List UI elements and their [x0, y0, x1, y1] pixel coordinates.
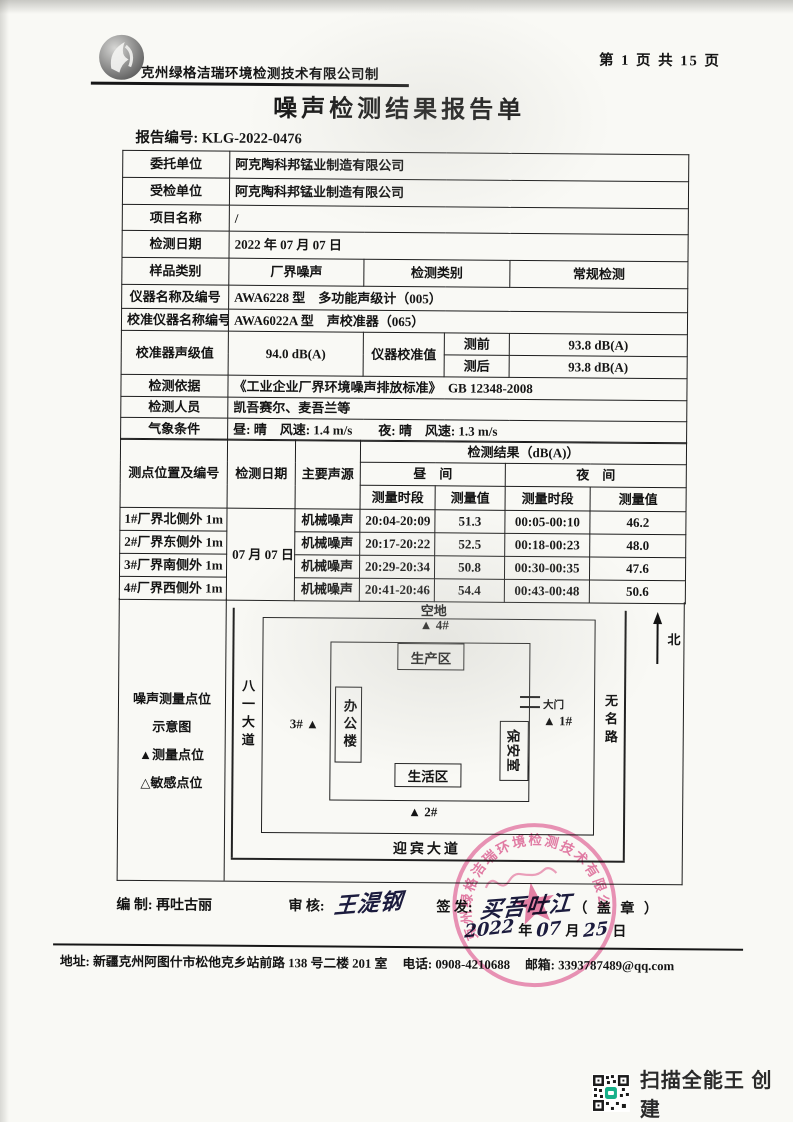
- measure-date: 07 月 07 日: [226, 508, 295, 601]
- review-signature: 王湜钢: [333, 883, 405, 921]
- pre-test-label: 测前: [444, 333, 509, 356]
- col-date-header: 检测日期: [227, 439, 296, 509]
- legend-measure-point: ▲测量点位: [139, 743, 204, 763]
- point-4: 4#厂界西侧外 1m: [119, 576, 226, 600]
- source-3: 机械噪声: [294, 555, 359, 579]
- basis-label: 检测依据: [121, 374, 228, 397]
- point-3: 3#厂界南侧外 1m: [119, 553, 226, 577]
- source-2: 机械噪声: [295, 532, 360, 556]
- inspected-value: 阿克陶科邦锰业制造有限公司: [229, 178, 688, 209]
- guard-room-box: 保安室: [499, 721, 528, 781]
- client-value: 阿克陶科邦锰业制造有限公司: [230, 151, 689, 182]
- instrument-cal-label: 仪器校准值: [363, 332, 444, 377]
- north-arrow-icon: [650, 612, 664, 669]
- results-table: 测点位置及编号 检测日期 主要声源 检测结果（dB(A)） 昼 间 夜 间 测量…: [119, 438, 687, 604]
- table-row: 测点位置及编号 检测日期 主要声源 检测结果（dB(A)）: [120, 438, 686, 464]
- date-value: 2022 年 07 月 07 日: [229, 231, 688, 262]
- point-4-marker: ▲ 4#: [420, 617, 449, 633]
- stamp-uyghur-script: [484, 867, 557, 889]
- project-label: 项目名称: [122, 204, 229, 231]
- night-value-1: 46.2: [590, 511, 686, 535]
- diagram-legend: 噪声测量点位 示意图 ▲测量点位 △敏感点位: [118, 598, 227, 881]
- night-value-3: 47.6: [589, 557, 685, 581]
- sample-value: 厂界噪声: [229, 258, 364, 286]
- day-period-4: 20:41-20:46: [359, 578, 434, 602]
- source-4: 机械噪声: [294, 578, 359, 602]
- maker-company-name: 克州绿格洁瑞环境检测技术有限公司制: [141, 61, 379, 83]
- living-area-box: 生活区: [394, 763, 461, 788]
- day-header: 昼 间: [360, 462, 505, 486]
- company-seal-stamp: 克州绿格洁瑞环境检测技术有限公司: [434, 805, 634, 1005]
- night-period-2: 00:18-00:23: [505, 533, 590, 557]
- office-building-label: 办公楼: [338, 698, 358, 751]
- guard-room-label: 保安室: [504, 729, 524, 773]
- col-source-header: 主要声源: [295, 440, 361, 510]
- instrument-label: 仪器名称及编号: [122, 284, 229, 309]
- source-1: 机械噪声: [295, 509, 360, 533]
- instrument-value: AWA6228 型 多功能声级计（005）: [229, 285, 688, 313]
- footer-address: 地址: 新疆克州阿图什市松他克乡站前路 138 号二楼 201 室: [60, 950, 388, 972]
- weather-label: 气象条件: [121, 417, 228, 440]
- night-header: 夜 间: [505, 463, 686, 487]
- camscanner-watermark: 扫描全能王 创建: [592, 1064, 793, 1122]
- night-period-header: 测量时段: [505, 486, 590, 511]
- day-value-4: 54.4: [434, 579, 504, 603]
- camscanner-label: 扫描全能王 创建: [640, 1064, 793, 1122]
- project-value: /: [229, 205, 688, 235]
- legend-title-1: 噪声测量点位: [133, 687, 211, 707]
- living-area-label: 生活区: [408, 765, 449, 785]
- col-result-header: 检测结果（dB(A)）: [360, 440, 686, 465]
- personnel-label: 检测人员: [121, 396, 228, 418]
- qr-code-icon: [592, 1074, 630, 1112]
- road-left-outer-line: [231, 608, 235, 858]
- prepared-label: 编 制:: [116, 898, 156, 913]
- scan-content: 克州绿格洁瑞环境检测技术有限公司制 第 1 页 共 15 页 噪声检测结果报告单…: [0, 0, 793, 1122]
- road-right-label: 无名路: [601, 694, 620, 748]
- prepared-by: 编 制: 再吐古丽: [116, 894, 212, 915]
- cal-level-label: 校准器声级值: [121, 330, 228, 375]
- client-label: 委托单位: [123, 150, 230, 178]
- production-area-label: 生产区: [411, 647, 452, 667]
- north-label: 北: [667, 629, 680, 648]
- document-title: 噪声检测结果报告单: [3, 86, 793, 127]
- night-value-4: 50.6: [589, 580, 685, 604]
- post-test-value: 93.8 dB(A): [509, 355, 687, 378]
- night-period-3: 00:30-00:35: [504, 556, 589, 580]
- point-1: 1#厂界北侧外 1m: [120, 507, 227, 531]
- stamp-star-icon: [510, 879, 558, 926]
- day-value-2: 52.5: [435, 533, 505, 557]
- gate-label: 大门: [543, 697, 564, 712]
- point-2-marker: ▲ 2#: [408, 804, 437, 820]
- review-label: 审 核:: [288, 895, 324, 915]
- day-value-1: 51.3: [435, 510, 505, 534]
- footer-contact: 地址: 新疆克州阿图什市松他克乡站前路 138 号二楼 201 室 电话: 09…: [60, 950, 750, 974]
- day-period-2: 20:17-20:22: [360, 532, 435, 556]
- report-number-label: 报告编号:: [135, 130, 202, 147]
- night-value-header: 测量值: [590, 487, 686, 512]
- report-number: 报告编号: KLG-2022-0476: [135, 126, 302, 148]
- inspected-label: 受检单位: [122, 177, 229, 205]
- calibrator-label: 校准仪器名称编号: [121, 308, 228, 331]
- scanned-page: 克州绿格洁瑞环境检测技术有限公司制 第 1 页 共 15 页 噪声检测结果报告单…: [0, 0, 793, 1122]
- gate-mark-top: [520, 696, 540, 698]
- point-1-marker: ▲ 1#: [543, 713, 572, 729]
- info-table: 委托单位 阿克陶科邦锰业制造有限公司 受检单位 阿克陶科邦锰业制造有限公司 项目…: [120, 150, 689, 444]
- day-value-3: 50.8: [434, 556, 504, 580]
- legend-sensitive-point: △敏感点位: [140, 771, 202, 790]
- day-period-3: 20:29-20:34: [359, 555, 434, 579]
- road-left-label: 八一大道: [238, 679, 258, 751]
- cal-level-value: 94.0 dB(A): [228, 331, 363, 376]
- report-number-value: KLG-2022-0476: [202, 130, 302, 147]
- road-right-outer-line: [623, 611, 627, 861]
- col-point-header: 测点位置及编号: [120, 438, 228, 508]
- production-area-box: 生产区: [397, 643, 464, 671]
- date-label: 检测日期: [122, 230, 229, 258]
- post-test-label: 测后: [444, 355, 509, 378]
- pre-test-value: 93.8 dB(A): [509, 333, 687, 356]
- prepared-name: 再吐古丽: [156, 898, 212, 913]
- sample-label: 样品类别: [122, 257, 229, 285]
- night-value-2: 48.0: [590, 534, 686, 558]
- point-2: 2#厂界东侧外 1m: [120, 530, 227, 554]
- category-label: 检测类别: [364, 259, 510, 287]
- day-value-header: 测量值: [435, 486, 505, 511]
- table-row: 校准器声级值 94.0 dB(A) 仪器校准值 测前 93.8 dB(A): [121, 330, 687, 356]
- night-period-4: 00:43-00:48: [504, 579, 589, 603]
- legend-title-2: 示意图: [152, 716, 191, 735]
- page-number: 第 1 页 共 15 页: [599, 49, 721, 71]
- day-period-header: 测量时段: [360, 485, 435, 510]
- point-3-marker: 3# ▲: [290, 716, 319, 732]
- gate-mark-bottom: [520, 706, 540, 708]
- company-logo-icon: [97, 33, 146, 82]
- night-period-1: 00:05-00:10: [505, 510, 590, 534]
- day-period-1: 20:04-20:09: [360, 509, 435, 533]
- category-value: 常规检测: [510, 260, 688, 288]
- office-building-box: 办公楼: [335, 687, 363, 763]
